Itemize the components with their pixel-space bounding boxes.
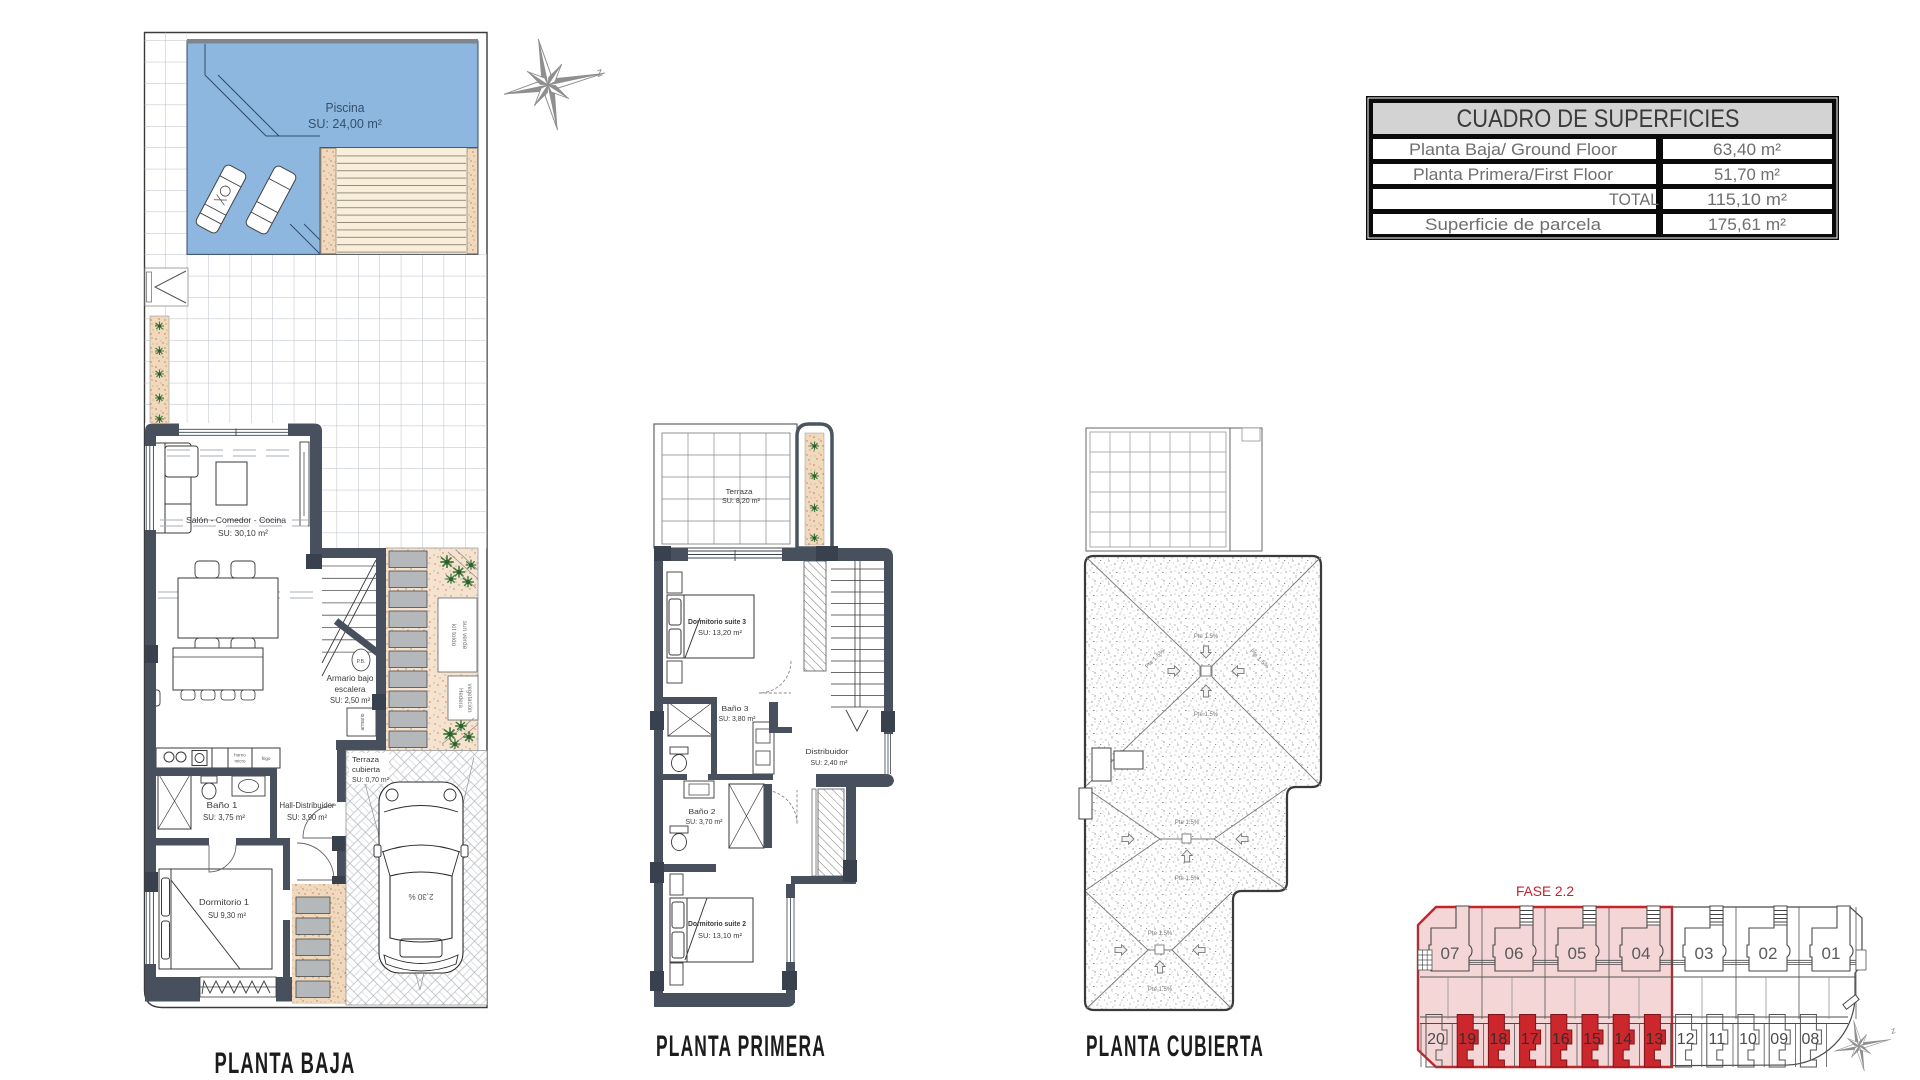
svg-text:frigo: frigo bbox=[262, 756, 271, 761]
svg-text:Pte 1.5%: Pte 1.5% bbox=[1175, 820, 1200, 826]
svg-text:Baño 2: Baño 2 bbox=[689, 807, 716, 816]
svg-text:SU: 3,70 m²: SU: 3,70 m² bbox=[686, 819, 724, 826]
svg-text:cubierta: cubierta bbox=[352, 765, 381, 774]
svg-text:Pte 1.5%: Pte 1.5% bbox=[1175, 876, 1200, 882]
svg-text:TOTAL: TOTAL bbox=[1609, 190, 1659, 209]
svg-text:01: 01 bbox=[1822, 944, 1841, 963]
svg-text:13: 13 bbox=[1646, 1031, 1664, 1048]
svg-text:17: 17 bbox=[1521, 1031, 1539, 1048]
svg-text:07: 07 bbox=[1441, 944, 1460, 963]
svg-text:Pte 1.5%: Pte 1.5% bbox=[1194, 712, 1219, 718]
svg-text:05: 05 bbox=[1568, 944, 1587, 963]
svg-text:horno: horno bbox=[234, 753, 246, 758]
svg-text:armario: armario bbox=[360, 713, 366, 730]
svg-text:SU: 2,50 m²: SU: 2,50 m² bbox=[330, 696, 370, 705]
svg-text:03: 03 bbox=[1695, 944, 1714, 963]
svg-text:Piscina: Piscina bbox=[326, 101, 365, 115]
svg-text:Baño 3: Baño 3 bbox=[722, 704, 749, 713]
svg-text:02: 02 bbox=[1759, 944, 1778, 963]
svg-text:Hedera: Hedera bbox=[457, 688, 463, 708]
svg-text:P.B.: P.B. bbox=[357, 659, 366, 665]
svg-text:Planta Baja/ Ground Floor: Planta Baja/ Ground Floor bbox=[1409, 140, 1617, 159]
svg-text:PLANTA CUBIERTA: PLANTA CUBIERTA bbox=[1086, 1030, 1264, 1063]
svg-text:18: 18 bbox=[1490, 1031, 1508, 1048]
svg-text:08: 08 bbox=[1802, 1031, 1820, 1048]
svg-text:Baño 1: Baño 1 bbox=[207, 800, 238, 810]
svg-text:04: 04 bbox=[1632, 944, 1651, 963]
svg-text:Dormitorio suite 3: Dormitorio suite 3 bbox=[688, 617, 746, 626]
svg-text:escalera: escalera bbox=[335, 685, 367, 694]
svg-text:11: 11 bbox=[1708, 1031, 1725, 1048]
svg-text:Planta Primera/First Floor: Planta Primera/First Floor bbox=[1413, 165, 1613, 184]
svg-text:09: 09 bbox=[1770, 1031, 1788, 1048]
svg-text:Dormitorio 1: Dormitorio 1 bbox=[199, 897, 249, 907]
svg-text:SU: 24,00 m²: SU: 24,00 m² bbox=[308, 116, 383, 131]
svg-text:SU: 8,20 m²: SU: 8,20 m² bbox=[722, 498, 761, 505]
svg-text:SU: 2,40 m²: SU: 2,40 m² bbox=[811, 760, 849, 767]
svg-text:FASE 2.2: FASE 2.2 bbox=[1516, 883, 1574, 899]
svg-text:19: 19 bbox=[1458, 1031, 1476, 1048]
svg-text:175,61 m²: 175,61 m² bbox=[1708, 215, 1786, 234]
svg-text:SU: 3,90 m²: SU: 3,90 m² bbox=[287, 813, 327, 822]
svg-text:115,10 m²: 115,10 m² bbox=[1707, 190, 1787, 209]
svg-text:CUADRO DE SUPERFICIES: CUADRO DE SUPERFICIES bbox=[1457, 105, 1740, 133]
svg-text:PLANTA PRIMERA: PLANTA PRIMERA bbox=[656, 1030, 826, 1063]
svg-text:Pte 1.5%: Pte 1.5% bbox=[1148, 987, 1173, 993]
svg-text:Terraza: Terraza bbox=[352, 755, 380, 764]
svg-text:Armario bajo: Armario bajo bbox=[327, 674, 375, 683]
svg-text:20: 20 bbox=[1427, 1031, 1445, 1048]
svg-text:Hall-Distribuidor: Hall-Distribuidor bbox=[280, 800, 335, 810]
svg-text:51,70 m²: 51,70 m² bbox=[1714, 165, 1780, 184]
svg-text:Superficie de parcela: Superficie de parcela bbox=[1425, 215, 1602, 234]
svg-text:SU: 13,10 m²: SU: 13,10 m² bbox=[698, 931, 742, 940]
svg-text:SU: 13,20 m²: SU: 13,20 m² bbox=[698, 628, 742, 637]
svg-text:Distribuidor: Distribuidor bbox=[806, 747, 850, 756]
svg-text:Dormitorio suite 2: Dormitorio suite 2 bbox=[688, 919, 746, 928]
svg-text:sun verde: sun verde bbox=[461, 621, 468, 650]
svg-text:SU: 0,70 m²: SU: 0,70 m² bbox=[352, 775, 389, 784]
svg-text:Pte 1.5%: Pte 1.5% bbox=[1194, 634, 1219, 640]
svg-text:10: 10 bbox=[1739, 1031, 1757, 1048]
svg-text:SU: 3,75 m²: SU: 3,75 m² bbox=[203, 813, 245, 822]
svg-text:micro: micro bbox=[235, 759, 246, 764]
svg-text:2,30 %: 2,30 % bbox=[409, 892, 434, 901]
svg-text:16: 16 bbox=[1552, 1031, 1570, 1048]
svg-text:06: 06 bbox=[1505, 944, 1524, 963]
svg-text:15: 15 bbox=[1583, 1031, 1601, 1048]
svg-text:Pte 1.5%: Pte 1.5% bbox=[1148, 931, 1173, 937]
svg-text:14: 14 bbox=[1614, 1031, 1632, 1048]
svg-text:63,40 m²: 63,40 m² bbox=[1713, 140, 1781, 159]
svg-text:PLANTA BAJA: PLANTA BAJA bbox=[215, 1047, 356, 1080]
svg-text:SU: 30,10 m²: SU: 30,10 m² bbox=[218, 528, 268, 538]
svg-text:kit toldo: kit toldo bbox=[450, 624, 457, 647]
svg-text:SU: 3,80 m²: SU: 3,80 m² bbox=[719, 716, 757, 723]
svg-text:SU 9,30 m²: SU 9,30 m² bbox=[208, 911, 246, 920]
svg-text:vegetación: vegetación bbox=[466, 683, 472, 712]
svg-text:12: 12 bbox=[1677, 1031, 1695, 1048]
svg-text:Salón - Comedor - Cocina: Salón - Comedor - Cocina bbox=[186, 515, 286, 525]
svg-text:Terraza: Terraza bbox=[726, 487, 754, 496]
